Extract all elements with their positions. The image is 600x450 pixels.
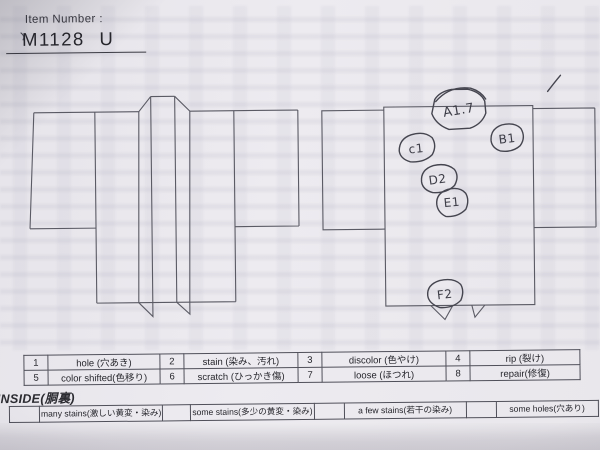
- inside-option-some-holes: some holes(穴あり): [496, 400, 598, 417]
- inside-checkbox-cell-some-stains: [163, 405, 191, 421]
- inside-checkbox-cell-some-holes: [466, 401, 496, 417]
- front-collar-slopes: [139, 96, 190, 112]
- defect-code-1: 1: [24, 355, 48, 370]
- front-collar-strips: [137, 96, 192, 303]
- defect-label-rip: rip (裂け): [470, 350, 580, 366]
- defect-code-3: 3: [298, 352, 322, 367]
- inside-checkbox-cell-a-few-stains: [314, 403, 344, 419]
- annotation-a17-label: A1.7: [442, 101, 476, 121]
- front-collar-tips: [139, 302, 190, 317]
- annotation-c1: c1: [399, 133, 435, 162]
- defect-label-stain: stain (染み、汚れ): [184, 353, 298, 369]
- defect-label-hole: hole (穴あき): [48, 354, 160, 370]
- stray-pen-tick: [547, 75, 560, 91]
- back-left-sleeve: [322, 110, 385, 230]
- defect-code-2: 2: [160, 354, 184, 369]
- annotation-b1-label: B1: [498, 131, 516, 147]
- annotation-b1: B1: [491, 124, 524, 152]
- defect-label-scratch: scratch (ひっかき傷): [184, 368, 298, 384]
- inside-option-some-stains: some stains(多少の黄変・染み): [191, 403, 314, 420]
- defect-code-4: 4: [446, 351, 470, 366]
- annotation-e1: E1: [437, 188, 468, 216]
- annotation-c1-label: c1: [408, 141, 425, 156]
- kimono-front-outline: [29, 95, 300, 318]
- defect-label-loose: loose (ほつれ): [322, 366, 446, 382]
- front-body: [95, 111, 236, 303]
- paper-sheet: Item Number : M1128 U: [0, 0, 600, 450]
- defect-label-color-shifted: color shifted(色移り): [48, 369, 160, 385]
- inside-option-many-stains: many stains(激しい黄変・染み): [39, 405, 162, 422]
- front-left-sleeve: [29, 112, 96, 229]
- defect-label-repair: repair(修復): [470, 365, 580, 381]
- defect-code-7: 7: [298, 367, 322, 382]
- small-pen-mark: [21, 33, 24, 40]
- annotation-f2: F2: [428, 279, 463, 307]
- back-right-sleeve: [533, 108, 596, 228]
- annotation-d2-label: D2: [428, 171, 448, 187]
- inside-checkbox-cell-many-stains: [9, 406, 39, 422]
- front-right-sleeve: [234, 110, 299, 227]
- annotation-f2-label: F2: [436, 287, 453, 303]
- annotation-a17: A1.7: [432, 88, 486, 130]
- kimono-back-outline: [322, 105, 597, 321]
- defect-code-8: 8: [446, 366, 470, 381]
- defect-code-5: 5: [24, 370, 48, 385]
- inside-option-a-few-stains: a few stains(若干の染み): [344, 402, 466, 419]
- front-shoulder-line: [34, 110, 298, 113]
- defect-label-discolor: discolor (色やけ): [322, 351, 446, 367]
- defect-code-6: 6: [160, 369, 184, 384]
- inside-section-title: INSIDE(胴裏): [0, 387, 75, 407]
- defect-legend-table: 1 hole (穴あき) 2 stain (染み、汚れ) 3 discolor …: [23, 349, 580, 386]
- annotation-e1-label: E1: [443, 195, 461, 211]
- inspection-sheet-photo: Item Number : M1128 U: [0, 0, 600, 450]
